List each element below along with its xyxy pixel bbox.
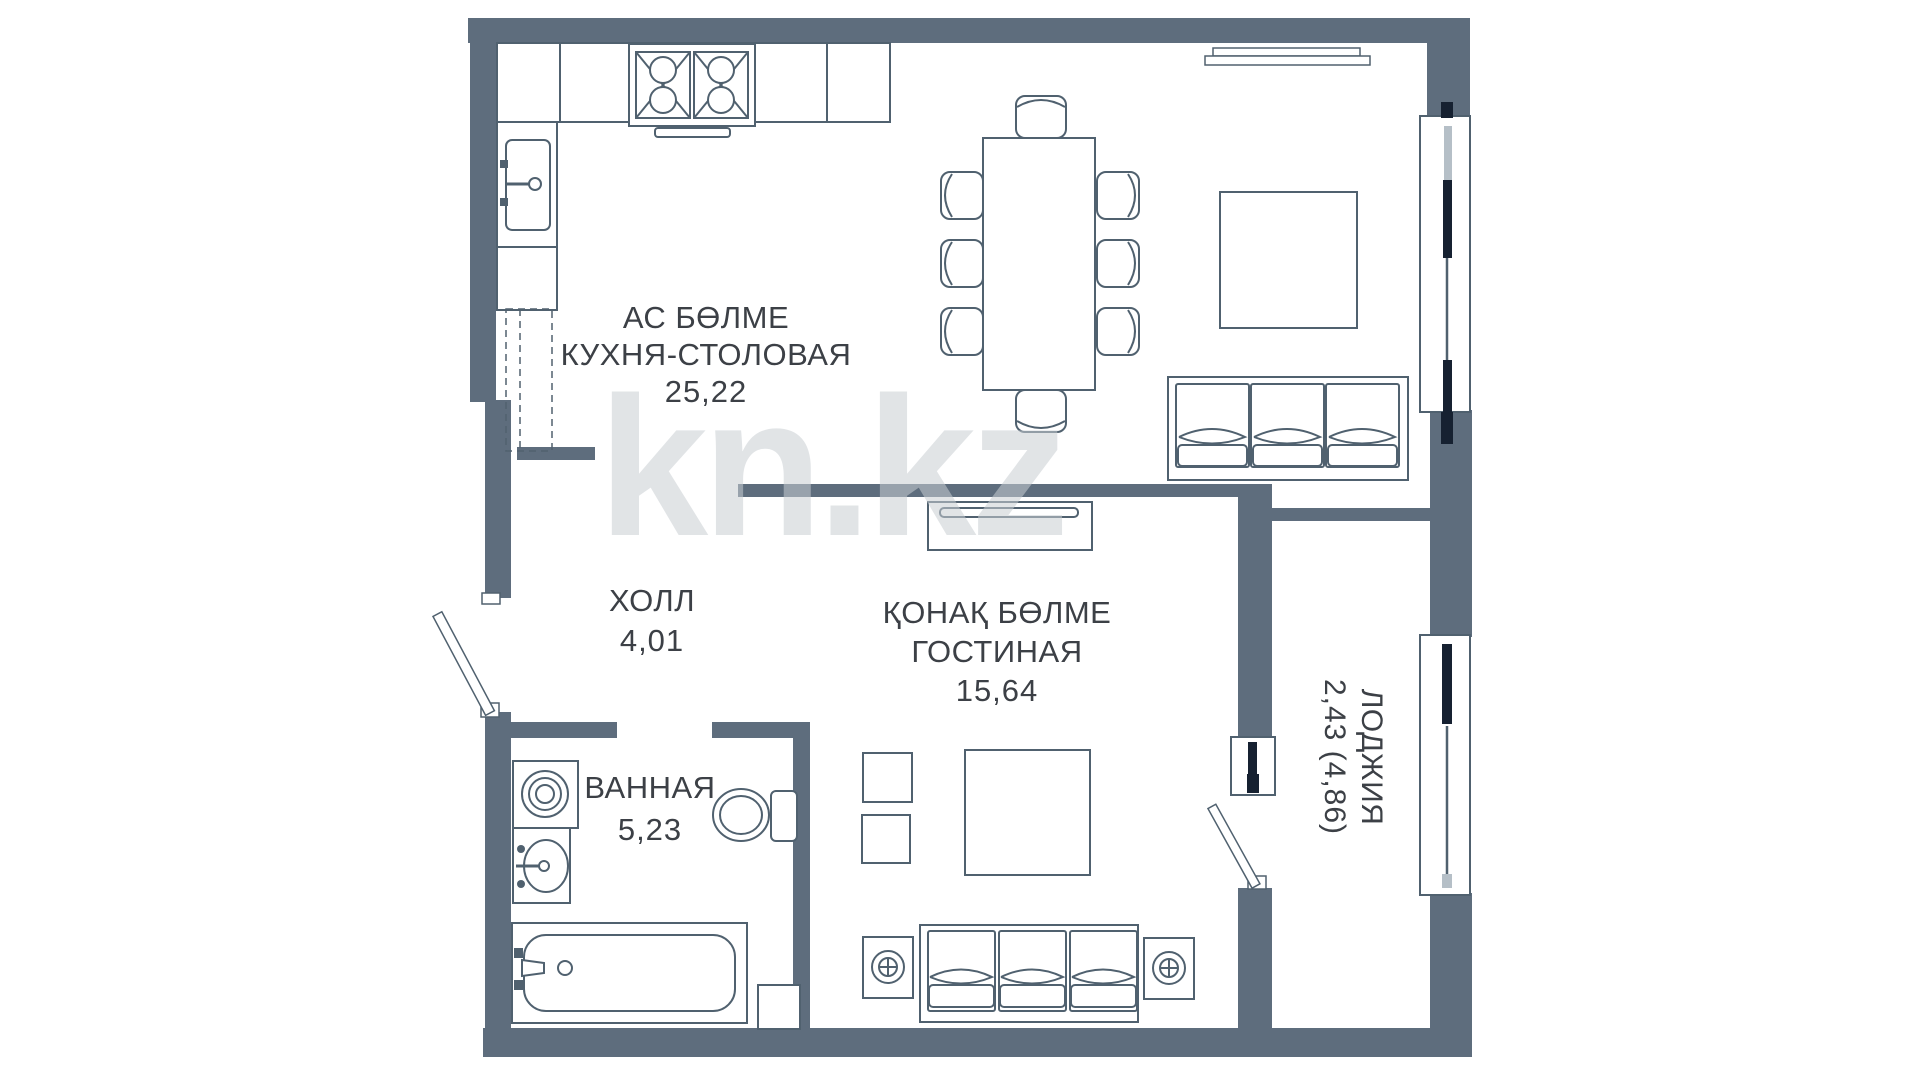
pouf-1 bbox=[863, 753, 912, 802]
dining-table bbox=[983, 138, 1095, 390]
tv-cabinet bbox=[928, 502, 1092, 550]
kitchen-sink bbox=[500, 140, 550, 230]
floor-plan-drawing bbox=[0, 0, 1920, 1080]
duct-dashed-zone bbox=[506, 309, 552, 451]
wall-left-mid bbox=[485, 400, 511, 598]
bathtub bbox=[512, 923, 747, 1023]
dining-sofa bbox=[1168, 377, 1408, 480]
wall-bottom bbox=[483, 1028, 1472, 1057]
wall-left-upper bbox=[470, 18, 496, 402]
wall-stub-kitchen-hall bbox=[517, 447, 595, 460]
speaker-left bbox=[863, 937, 913, 998]
living-furniture bbox=[862, 502, 1194, 1022]
pouf-2 bbox=[862, 815, 910, 863]
kitchen-rug bbox=[1220, 192, 1357, 328]
wall-top bbox=[468, 18, 1470, 43]
bathroom-furniture bbox=[512, 761, 800, 1029]
wall-loggia-top bbox=[1272, 508, 1430, 521]
washing-machine bbox=[513, 761, 578, 828]
wall-right-low bbox=[1430, 893, 1472, 1030]
wall-loggia-vertical-upper bbox=[1238, 484, 1272, 737]
wall-bath-top-left bbox=[509, 722, 617, 738]
loggia-window bbox=[1420, 635, 1470, 895]
top-wall-window bbox=[1205, 48, 1370, 65]
living-sofa bbox=[920, 925, 1138, 1022]
speaker-right bbox=[1144, 938, 1194, 999]
floor-plan-page: АС БӨЛМЕ КУХНЯ-СТОЛОВАЯ 25,22 ХОЛЛ 4,01 … bbox=[0, 0, 1920, 1080]
bathroom-sink bbox=[513, 828, 570, 903]
living-rug bbox=[965, 750, 1090, 875]
kitchen-window bbox=[1420, 102, 1470, 444]
stove bbox=[629, 44, 755, 137]
wall-right-mid bbox=[1430, 410, 1472, 637]
balcony-door bbox=[1208, 737, 1275, 889]
wall-loggia-vertical-lower bbox=[1238, 888, 1272, 1028]
wall-bath-top-right bbox=[712, 722, 810, 738]
wall-niche bbox=[758, 985, 800, 1029]
toilet bbox=[713, 789, 797, 841]
entrance-door bbox=[433, 593, 500, 717]
wall-center bbox=[738, 484, 1238, 497]
wall-left-lower bbox=[485, 712, 511, 1057]
kitchen-furniture bbox=[497, 43, 890, 451]
